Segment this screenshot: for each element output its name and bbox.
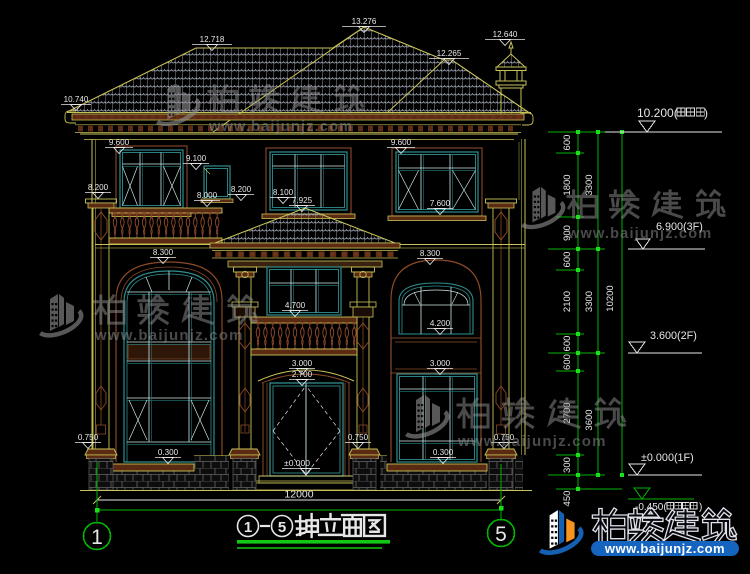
svg-text:3600: 3600	[584, 409, 595, 430]
svg-text:2.700: 2.700	[292, 370, 313, 379]
svg-text:450: 450	[562, 491, 573, 507]
svg-text:3.000: 3.000	[292, 359, 313, 368]
svg-text:600: 600	[562, 336, 573, 352]
svg-text:12.640: 12.640	[493, 30, 518, 39]
svg-text:5: 5	[495, 523, 507, 546]
svg-text:12.265: 12.265	[437, 49, 462, 58]
svg-text:3.000: 3.000	[430, 359, 451, 368]
svg-text:0.300: 0.300	[433, 448, 454, 457]
svg-text:10200: 10200	[605, 285, 616, 311]
svg-text:±0.000: ±0.000	[284, 458, 310, 468]
svg-text:8.200: 8.200	[231, 185, 252, 194]
svg-text:12000: 12000	[284, 489, 313, 501]
svg-text:8.300: 8.300	[420, 249, 441, 258]
svg-text:): )	[704, 106, 708, 120]
svg-text:8.200: 8.200	[88, 183, 109, 192]
svg-text:600: 600	[562, 135, 573, 151]
svg-text:10.200(: 10.200(	[637, 106, 678, 120]
svg-text:13.276: 13.276	[352, 17, 377, 26]
svg-text:www.baijunjz.com: www.baijunjz.com	[94, 327, 244, 344]
svg-text:www.baijunjz.com: www.baijunjz.com	[567, 226, 712, 242]
svg-text:600: 600	[562, 252, 573, 268]
svg-text:12.718: 12.718	[200, 35, 225, 44]
svg-text:www.baijunjz.com: www.baijunjz.com	[208, 119, 353, 135]
svg-text:2100: 2100	[562, 291, 573, 312]
svg-text:±0.000(1F): ±0.000(1F)	[641, 452, 694, 464]
svg-text:1: 1	[91, 526, 103, 549]
svg-text:0.300: 0.300	[158, 448, 179, 457]
svg-text:): )	[699, 502, 702, 513]
svg-text:1800: 1800	[562, 174, 573, 195]
svg-text:7.600: 7.600	[430, 199, 451, 208]
svg-text:8.100: 8.100	[273, 188, 294, 197]
svg-text:4.700: 4.700	[285, 301, 306, 310]
svg-text:9.100: 9.100	[186, 154, 207, 163]
svg-text:0.750: 0.750	[78, 433, 99, 442]
svg-text:10.740: 10.740	[64, 95, 89, 104]
svg-text:4.200: 4.200	[430, 319, 451, 328]
svg-text:9.600: 9.600	[391, 138, 412, 147]
svg-text:8.300: 8.300	[153, 248, 174, 257]
svg-text:300: 300	[562, 457, 573, 473]
svg-text:5: 5	[278, 519, 286, 536]
svg-text:3.600(2F): 3.600(2F)	[650, 330, 697, 342]
svg-text:0.750: 0.750	[348, 433, 369, 442]
svg-text:600: 600	[562, 354, 573, 370]
svg-text:www.baijunjz.com: www.baijunjz.com	[457, 433, 607, 450]
svg-text:7.925: 7.925	[292, 196, 313, 205]
svg-text:www.baijunjz.com: www.baijunjz.com	[604, 541, 725, 556]
svg-text:1: 1	[244, 519, 252, 536]
svg-text:8.000: 8.000	[197, 191, 218, 200]
svg-text:9.600: 9.600	[109, 138, 130, 147]
svg-text:3300: 3300	[584, 291, 595, 312]
